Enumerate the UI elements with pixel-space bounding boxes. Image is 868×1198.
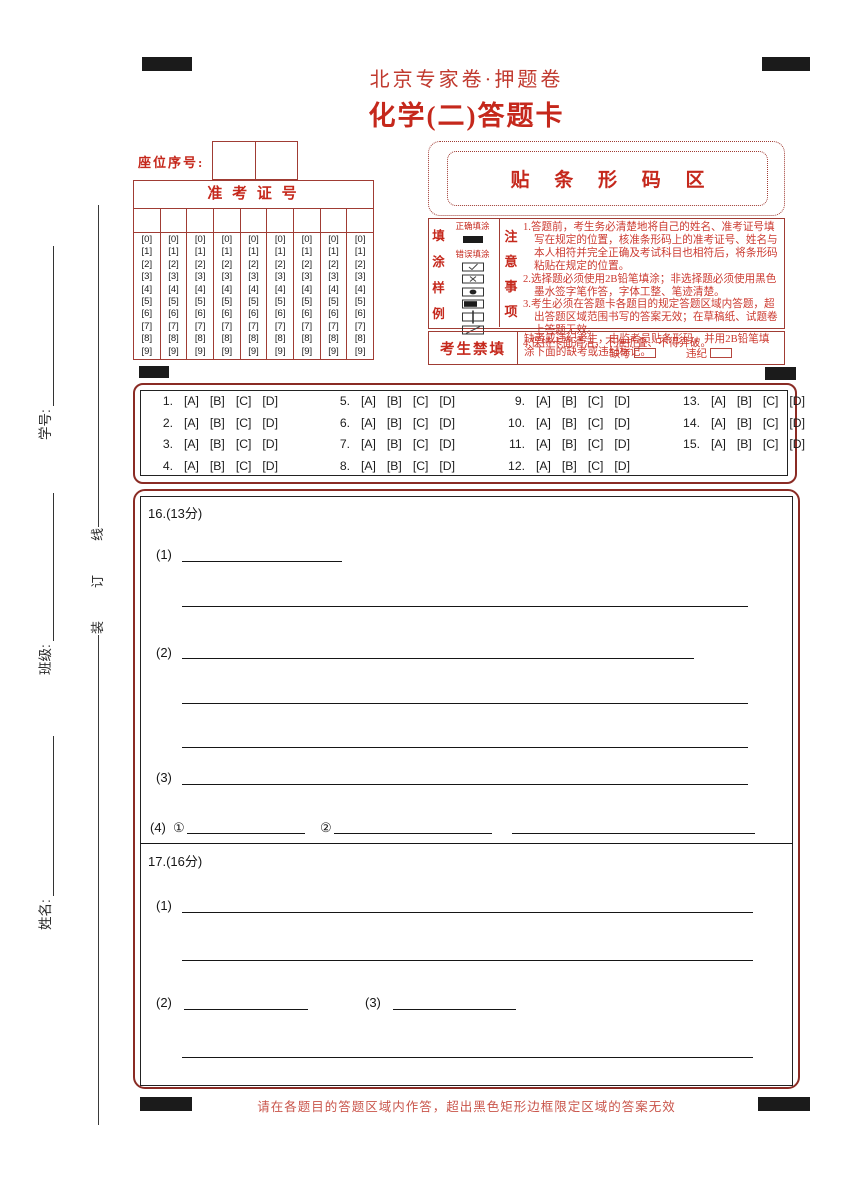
answer-bubble[interactable]: [D]: [614, 416, 630, 430]
digit-bubble[interactable]: [3]: [267, 271, 293, 283]
forbidden-box: 考生禁填 缺考或违纪考生，由监考员贴条形码，并用2B铅笔填涂下面的缺考或违纪标记…: [428, 331, 785, 365]
answer-line[interactable]: [184, 1009, 308, 1010]
question-number: 6.: [327, 416, 350, 430]
ticket-write-cell[interactable]: [346, 209, 373, 232]
digit-bubble[interactable]: [4]: [241, 284, 267, 296]
answer-bubble[interactable]: [C]: [413, 437, 429, 451]
answer-bubble[interactable]: [B]: [387, 459, 402, 473]
digit-bubble[interactable]: [1]: [267, 246, 293, 258]
vertical-char: 装: [90, 621, 105, 634]
digit-bubble[interactable]: [5]: [267, 296, 293, 308]
digit-bubble[interactable]: [9]: [267, 346, 293, 358]
answer-bubble[interactable]: [B]: [562, 459, 577, 473]
answer-bubble[interactable]: [C]: [236, 459, 252, 473]
objective-question-row: 14.[A][B][C][D]: [677, 416, 805, 438]
wrong-fill-label: 错误填涂: [447, 249, 498, 259]
digit-bubble[interactable]: [0]: [214, 234, 240, 246]
answer-bubble[interactable]: [B]: [737, 416, 752, 430]
ticket-bubble-grid: [0][1][2][3][4][5][6][7][8][9][0][1][2][…: [134, 233, 373, 359]
dot-mark-icon: [461, 287, 485, 297]
digit-bubble[interactable]: [8]: [187, 333, 213, 345]
vertical-char: 例: [432, 303, 445, 322]
digit-bubble[interactable]: [9]: [161, 346, 187, 358]
violation-checkbox[interactable]: [710, 348, 732, 358]
digit-bubble[interactable]: [4]: [347, 284, 373, 296]
answer-line[interactable]: [182, 960, 753, 961]
objective-question-row: 8.[A][B][C][D]: [327, 459, 455, 481]
binding-line-text: 装订线: [88, 527, 108, 635]
answer-bubble[interactable]: [B]: [562, 437, 577, 451]
question-number: 1.: [150, 394, 173, 408]
question-number: 14.: [677, 416, 700, 430]
notice-column-label: 注意事项: [501, 223, 521, 323]
objective-question-row: 11.[A][B][C][D]: [502, 437, 630, 459]
class-field: 班级:: [34, 479, 54, 675]
absent-check-group: 缺考: [610, 346, 656, 361]
q16-sub2-label: ②: [320, 820, 332, 836]
answer-line[interactable]: [182, 561, 342, 562]
vertical-line-mark-icon: [461, 312, 485, 322]
absent-label: 缺考: [610, 348, 631, 360]
digit-bubble[interactable]: [3]: [187, 271, 213, 283]
ticket-write-cell[interactable]: [240, 209, 267, 232]
vertical-char: 事: [504, 276, 517, 295]
vertical-char: 样: [432, 277, 445, 296]
ticket-digit-column: [0][1][2][3][4][5][6][7][8][9]: [213, 233, 240, 359]
digit-bubble[interactable]: [2]: [294, 259, 320, 271]
digit-bubble[interactable]: [9]: [347, 346, 373, 358]
digit-bubble[interactable]: [4]: [187, 284, 213, 296]
registration-mark-mid-left: [139, 366, 169, 378]
digit-bubble[interactable]: [7]: [134, 321, 160, 333]
ticket-write-cell[interactable]: [320, 209, 347, 232]
question-number: 13.: [677, 394, 700, 408]
digit-bubble[interactable]: [6]: [134, 308, 160, 320]
answer-bubble[interactable]: [C]: [763, 394, 779, 408]
digit-bubble[interactable]: [3]: [321, 271, 347, 283]
student-id-label: 学号:: [34, 409, 54, 440]
student-id-field: 学号:: [34, 233, 54, 440]
digit-bubble[interactable]: [0]: [187, 234, 213, 246]
subjective-section: [140, 496, 793, 1086]
answer-bubble[interactable]: [B]: [387, 416, 402, 430]
digit-bubble[interactable]: [1]: [294, 246, 320, 258]
digit-bubble[interactable]: [7]: [347, 321, 373, 333]
check-mark-icon: [461, 262, 485, 272]
digit-bubble[interactable]: [7]: [187, 321, 213, 333]
question-number: 9.: [502, 394, 525, 408]
q16-part2-label: (2): [156, 645, 172, 660]
objective-question-row: 9.[A][B][C][D]: [502, 394, 630, 416]
heavy-fill-mark-icon: [461, 299, 485, 309]
objective-question-row: 15.[A][B][C][D]: [677, 437, 805, 459]
answer-bubble[interactable]: [D]: [439, 394, 455, 408]
digit-bubble[interactable]: [8]: [214, 333, 240, 345]
answer-bubble[interactable]: [B]: [562, 416, 577, 430]
digit-bubble[interactable]: [0]: [267, 234, 293, 246]
answer-line[interactable]: [182, 912, 753, 913]
digit-bubble[interactable]: [1]: [187, 246, 213, 258]
vertical-char: 注: [504, 226, 517, 245]
objective-question-row: 4.[A][B][C][D]: [150, 459, 278, 481]
digit-bubble[interactable]: [2]: [187, 259, 213, 271]
objective-column: 5.[A][B][C][D]6.[A][B][C][D]7.[A][B][C][…: [327, 394, 455, 480]
digit-bubble[interactable]: [8]: [347, 333, 373, 345]
digit-bubble[interactable]: [1]: [214, 246, 240, 258]
ticket-digit-column: [0][1][2][3][4][5][6][7][8][9]: [293, 233, 320, 359]
answer-bubble[interactable]: [B]: [562, 394, 577, 408]
answer-bubble[interactable]: [C]: [588, 437, 604, 451]
ticket-number-table: 准 考 证 号 [0][1][2][3][4][5][6][7][8][9][0…: [133, 180, 374, 360]
q16-part4-label: (4): [150, 820, 166, 835]
digit-bubble[interactable]: [6]: [161, 308, 187, 320]
seat-number-box: [212, 141, 298, 180]
digit-bubble[interactable]: [6]: [321, 308, 347, 320]
digit-bubble[interactable]: [6]: [187, 308, 213, 320]
digit-bubble[interactable]: [8]: [134, 333, 160, 345]
vertical-char: 意: [504, 251, 517, 270]
q17-part1-label: (1): [156, 898, 172, 913]
ticket-digit-column: [0][1][2][3][4][5][6][7][8][9]: [134, 233, 160, 359]
answer-line[interactable]: [182, 606, 748, 607]
ticket-write-cell[interactable]: [186, 209, 213, 232]
objective-question-row: 3.[A][B][C][D]: [150, 437, 278, 459]
violation-label: 违纪: [686, 348, 707, 360]
answer-bubble[interactable]: [A]: [711, 416, 726, 430]
digit-bubble[interactable]: [2]: [161, 259, 187, 271]
answer-bubble[interactable]: [B]: [737, 394, 752, 408]
digit-bubble[interactable]: [2]: [134, 259, 160, 271]
answer-bubble[interactable]: [D]: [614, 437, 630, 451]
q17-part2-label: (2): [156, 995, 172, 1010]
digit-bubble[interactable]: [0]: [347, 234, 373, 246]
question-number: 2.: [150, 416, 173, 430]
fill-sample-column-label: 填涂样例: [430, 221, 447, 326]
q17-part3-label: (3): [365, 995, 381, 1010]
answer-bubble[interactable]: [D]: [789, 416, 805, 430]
violation-check-group: 违纪: [686, 346, 732, 361]
digit-bubble[interactable]: [9]: [321, 346, 347, 358]
objective-question-row: 7.[A][B][C][D]: [327, 437, 455, 459]
answer-line[interactable]: [182, 784, 748, 785]
digit-bubble[interactable]: [7]: [241, 321, 267, 333]
digit-bubble[interactable]: [5]: [294, 296, 320, 308]
digit-bubble[interactable]: [6]: [267, 308, 293, 320]
digit-bubble[interactable]: [2]: [241, 259, 267, 271]
ticket-digit-column: [0][1][2][3][4][5][6][7][8][9]: [346, 233, 373, 359]
digit-bubble[interactable]: [4]: [267, 284, 293, 296]
answer-bubble[interactable]: [A]: [184, 416, 199, 430]
digit-bubble[interactable]: [9]: [214, 346, 240, 358]
seat-number-label: 座位序号:: [138, 152, 204, 171]
digit-bubble[interactable]: [1]: [134, 246, 160, 258]
answer-line[interactable]: [187, 833, 305, 834]
digit-bubble[interactable]: [6]: [241, 308, 267, 320]
objective-column: 1.[A][B][C][D]2.[A][B][C][D]3.[A][B][C][…: [150, 394, 278, 480]
answer-bubble[interactable]: [C]: [236, 416, 252, 430]
digit-bubble[interactable]: [5]: [241, 296, 267, 308]
answer-bubble[interactable]: [C]: [413, 416, 429, 430]
ticket-number-title: 准 考 证 号: [134, 181, 373, 209]
answer-bubble[interactable]: [D]: [614, 459, 630, 473]
answer-line[interactable]: [182, 1057, 753, 1058]
forbidden-check-row: 缺考 违纪: [610, 346, 732, 361]
digit-bubble[interactable]: [0]: [294, 234, 320, 246]
vertical-char: 线: [90, 528, 105, 541]
digit-bubble[interactable]: [0]: [321, 234, 347, 246]
ticket-digit-column: [0][1][2][3][4][5][6][7][8][9]: [240, 233, 267, 359]
ticket-write-cell[interactable]: [134, 209, 160, 232]
answer-bubble[interactable]: [B]: [387, 394, 402, 408]
answer-bubble[interactable]: [B]: [210, 437, 225, 451]
answer-bubble[interactable]: [C]: [413, 394, 429, 408]
answer-bubble[interactable]: [B]: [210, 394, 225, 408]
answer-bubble[interactable]: [C]: [236, 437, 252, 451]
digit-bubble[interactable]: [7]: [294, 321, 320, 333]
answer-line[interactable]: [512, 833, 755, 834]
answer-bubble[interactable]: [A]: [711, 394, 726, 408]
ticket-digit-column: [0][1][2][3][4][5][6][7][8][9]: [160, 233, 187, 359]
barcode-area-label: 贴 条 形 码 区: [500, 165, 714, 192]
question-number: 4.: [150, 459, 173, 473]
answer-bubble[interactable]: [D]: [439, 416, 455, 430]
vertical-char: 订: [90, 574, 105, 587]
digit-bubble[interactable]: [0]: [134, 234, 160, 246]
answer-bubble[interactable]: [C]: [413, 459, 429, 473]
digit-bubble[interactable]: [9]: [241, 346, 267, 358]
digit-bubble[interactable]: [3]: [134, 271, 160, 283]
vertical-char: 填: [432, 225, 445, 244]
digit-bubble[interactable]: [2]: [321, 259, 347, 271]
digit-bubble[interactable]: [7]: [214, 321, 240, 333]
digit-bubble[interactable]: [4]: [294, 284, 320, 296]
digit-bubble[interactable]: [5]: [161, 296, 187, 308]
fill-sample-column: 正确填涂 错误填涂: [447, 221, 498, 328]
page-title: 化学(二)答题卡: [133, 94, 800, 133]
ticket-write-row: [134, 209, 373, 233]
objective-question-row: 10.[A][B][C][D]: [502, 416, 630, 438]
answer-bubble[interactable]: [D]: [614, 394, 630, 408]
objective-column: 13.[A][B][C][D]14.[A][B][C][D]15.[A][B][…: [677, 394, 805, 459]
correct-fill-label: 正确填涂: [447, 221, 498, 231]
q16-sub1-label: ①: [173, 820, 185, 836]
digit-bubble[interactable]: [5]: [134, 296, 160, 308]
answer-bubble[interactable]: [D]: [789, 394, 805, 408]
notice-item: 2.选择题必须使用2B铅笔填涂；非选择题必须使用黑色墨水签字笔作答，字体工整、笔…: [523, 274, 782, 300]
answer-bubble[interactable]: [C]: [588, 459, 604, 473]
answer-bubble[interactable]: [C]: [763, 416, 779, 430]
ticket-digit-column: [0][1][2][3][4][5][6][7][8][9]: [320, 233, 347, 359]
registration-mark-mid-right: [765, 367, 796, 380]
forbidden-label: 考生禁填: [429, 332, 518, 364]
vertical-char: 项: [504, 301, 517, 320]
question-number: 5.: [327, 394, 350, 408]
digit-bubble[interactable]: [8]: [161, 333, 187, 345]
binding-line: [98, 205, 99, 1125]
digit-bubble[interactable]: [5]: [187, 296, 213, 308]
digit-bubble[interactable]: [1]: [321, 246, 347, 258]
answer-line[interactable]: [182, 658, 694, 659]
answer-bubble[interactable]: [A]: [536, 459, 551, 473]
answer-bubble[interactable]: [A]: [184, 394, 199, 408]
question-17-heading: 17.(16分): [148, 851, 202, 870]
digit-bubble[interactable]: [3]: [347, 271, 373, 283]
answer-line[interactable]: [393, 1009, 516, 1010]
digit-bubble[interactable]: [5]: [321, 296, 347, 308]
digit-bubble[interactable]: [3]: [214, 271, 240, 283]
question-number: 11.: [502, 437, 525, 451]
answer-line[interactable]: [334, 833, 492, 834]
name-field: 姓名:: [34, 722, 54, 930]
answer-bubble[interactable]: [A]: [184, 459, 199, 473]
answer-bubble[interactable]: [C]: [236, 394, 252, 408]
digit-bubble[interactable]: [2]: [347, 259, 373, 271]
q16-part3-label: (3): [156, 770, 172, 785]
digit-bubble[interactable]: [4]: [214, 284, 240, 296]
digit-bubble[interactable]: [0]: [161, 234, 187, 246]
answer-bubble[interactable]: [A]: [536, 416, 551, 430]
digit-bubble[interactable]: [3]: [161, 271, 187, 283]
class-label: 班级:: [34, 644, 54, 675]
notice-box: 填涂样例 正确填涂 错误填涂: [428, 218, 785, 329]
digit-bubble[interactable]: [7]: [321, 321, 347, 333]
notice-item: 1.答题前，考生务必清楚地将自己的姓名、准考证号填写在规定的位置，核准条形码上的…: [523, 222, 782, 274]
seat-number-cell[interactable]: [213, 142, 256, 179]
objective-question-row: 5.[A][B][C][D]: [327, 394, 455, 416]
answer-line[interactable]: [182, 703, 748, 704]
ticket-write-cell[interactable]: [160, 209, 187, 232]
digit-bubble[interactable]: [5]: [214, 296, 240, 308]
answer-bubble[interactable]: [A]: [711, 437, 726, 451]
ticket-digit-column: [0][1][2][3][4][5][6][7][8][9]: [266, 233, 293, 359]
answer-bubble[interactable]: [A]: [536, 394, 551, 408]
digit-bubble[interactable]: [6]: [214, 308, 240, 320]
digit-bubble[interactable]: [9]: [187, 346, 213, 358]
answer-bubble[interactable]: [D]: [262, 437, 278, 451]
answer-bubble[interactable]: [D]: [439, 437, 455, 451]
digit-bubble[interactable]: [3]: [241, 271, 267, 283]
digit-bubble[interactable]: [8]: [241, 333, 267, 345]
answer-bubble[interactable]: [A]: [361, 437, 376, 451]
q16-part1-label: (1): [156, 547, 172, 562]
objective-question-row: 6.[A][B][C][D]: [327, 416, 455, 438]
name-label: 姓名:: [34, 899, 54, 930]
question-divider: [140, 843, 793, 844]
student-id-write-line[interactable]: [40, 246, 54, 406]
name-write-line[interactable]: [40, 736, 54, 896]
answer-bubble[interactable]: [B]: [387, 437, 402, 451]
digit-bubble[interactable]: [5]: [347, 296, 373, 308]
answer-bubble[interactable]: [C]: [763, 437, 779, 451]
objective-question-row: 13.[A][B][C][D]: [677, 394, 805, 416]
answer-bubble[interactable]: [A]: [361, 394, 376, 408]
question-number: 8.: [327, 459, 350, 473]
digit-bubble[interactable]: [1]: [347, 246, 373, 258]
answer-bubble[interactable]: [B]: [210, 416, 225, 430]
absent-checkbox[interactable]: [634, 348, 656, 358]
answer-bubble[interactable]: [D]: [789, 437, 805, 451]
objective-question-row: 2.[A][B][C][D]: [150, 416, 278, 438]
digit-bubble[interactable]: [1]: [161, 246, 187, 258]
digit-bubble[interactable]: [6]: [347, 308, 373, 320]
answer-sheet-page: 北京专家卷·押题卷 化学(二)答题卡 装订线 学号: 班级: 姓名: 座位序号:…: [0, 0, 868, 1198]
answer-bubble[interactable]: [A]: [361, 416, 376, 430]
digit-bubble[interactable]: [4]: [161, 284, 187, 296]
footer-warning: 请在各题目的答题区域内作答，超出黑色矩形边框限定区域的答案无效: [133, 1096, 800, 1115]
question-number: 12.: [502, 459, 525, 473]
digit-bubble[interactable]: [9]: [294, 346, 320, 358]
ticket-write-cell[interactable]: [266, 209, 293, 232]
ticket-digit-column: [0][1][2][3][4][5][6][7][8][9]: [186, 233, 213, 359]
answer-bubble[interactable]: [B]: [737, 437, 752, 451]
cross-mark-icon: [461, 274, 485, 284]
answer-bubble[interactable]: [D]: [439, 459, 455, 473]
objective-question-row: 1.[A][B][C][D]: [150, 394, 278, 416]
digit-bubble[interactable]: [2]: [267, 259, 293, 271]
correct-fill-mark: [463, 236, 483, 243]
vertical-char: 涂: [432, 251, 445, 270]
objective-question-row: 12.[A][B][C][D]: [502, 459, 630, 481]
ticket-write-cell[interactable]: [213, 209, 240, 232]
digit-bubble[interactable]: [8]: [267, 333, 293, 345]
answer-line[interactable]: [182, 747, 748, 748]
answer-bubble[interactable]: [C]: [588, 416, 604, 430]
digit-bubble[interactable]: [1]: [241, 246, 267, 258]
digit-bubble[interactable]: [3]: [294, 271, 320, 283]
answer-bubble[interactable]: [D]: [262, 416, 278, 430]
question-number: 10.: [502, 416, 525, 430]
class-write-line[interactable]: [40, 493, 54, 641]
answer-bubble[interactable]: [A]: [361, 459, 376, 473]
digit-bubble[interactable]: [7]: [267, 321, 293, 333]
digit-bubble[interactable]: [9]: [134, 346, 160, 358]
question-number: 3.: [150, 437, 173, 451]
objective-column: 9.[A][B][C][D]10.[A][B][C][D]11.[A][B][C…: [502, 394, 630, 480]
digit-bubble[interactable]: [4]: [321, 284, 347, 296]
answer-bubble[interactable]: [A]: [184, 437, 199, 451]
seat-number-cell[interactable]: [256, 142, 298, 179]
ticket-write-cell[interactable]: [293, 209, 320, 232]
digit-bubble[interactable]: [0]: [241, 234, 267, 246]
answer-bubble[interactable]: [A]: [536, 437, 551, 451]
answer-bubble[interactable]: [B]: [210, 459, 225, 473]
question-number: 15.: [677, 437, 700, 451]
answer-bubble[interactable]: [D]: [262, 459, 278, 473]
digit-bubble[interactable]: [8]: [321, 333, 347, 345]
barcode-area[interactable]: 贴 条 形 码 区: [447, 151, 768, 206]
digit-bubble[interactable]: [8]: [294, 333, 320, 345]
question-16-heading: 16.(13分): [148, 503, 202, 522]
notice-box-divider: [499, 219, 500, 327]
answer-bubble[interactable]: [C]: [588, 394, 604, 408]
digit-bubble[interactable]: [2]: [214, 259, 240, 271]
question-number: 7.: [327, 437, 350, 451]
answer-bubble[interactable]: [D]: [262, 394, 278, 408]
digit-bubble[interactable]: [4]: [134, 284, 160, 296]
digit-bubble[interactable]: [6]: [294, 308, 320, 320]
paper-series-title: 北京专家卷·押题卷: [133, 63, 800, 92]
digit-bubble[interactable]: [7]: [161, 321, 187, 333]
